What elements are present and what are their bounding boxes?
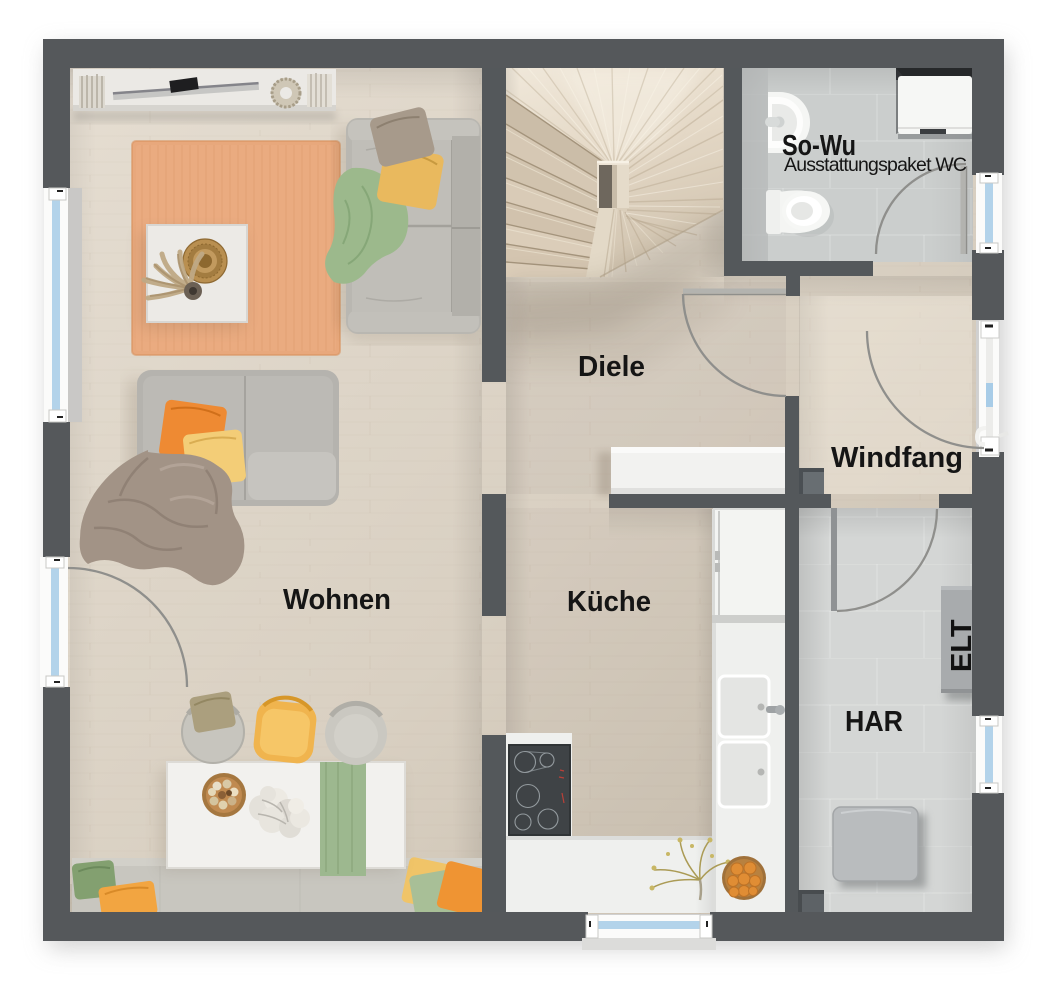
svg-text:Wohnen: Wohnen — [283, 584, 391, 616]
svg-text:Ausstattungspaket WC: Ausstattungspaket WC — [784, 154, 967, 176]
svg-text:HAR: HAR — [845, 706, 903, 738]
svg-text:Küche: Küche — [567, 586, 651, 618]
svg-text:Windfang: Windfang — [831, 442, 963, 474]
svg-text:Diele: Diele — [578, 351, 645, 383]
